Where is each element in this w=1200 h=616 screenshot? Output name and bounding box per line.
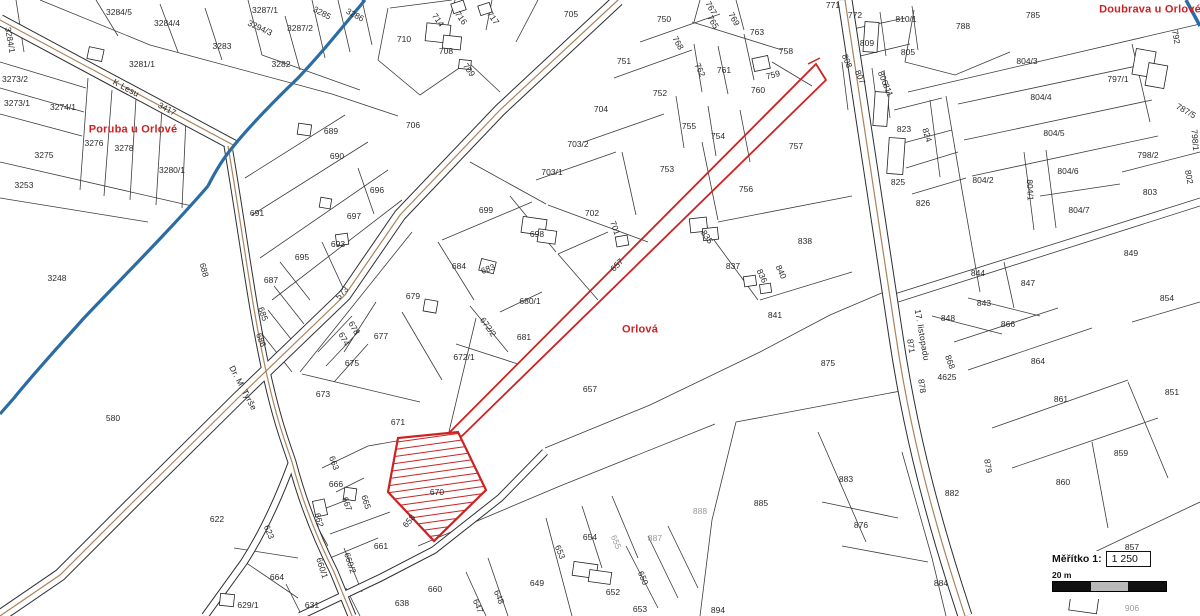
parcel-number-label: 841 [768,311,782,320]
parcel-number-label: 804/7 [1068,206,1089,215]
parcel-number-label: 698 [530,230,544,239]
parcel-number-label: 695 [295,253,309,262]
parcel-number-label: 755 [682,122,696,131]
parcel-number-label: 785 [1026,11,1040,20]
parcel-number-label: 878 [917,378,927,393]
parcel-number-label: 657 [583,385,597,394]
parcel-number-label: 803 [1143,188,1157,197]
parcel-number-label: 631 [305,601,319,610]
parcel-number-label: 753 [660,165,674,174]
parcel-number-label: 673 [316,390,330,399]
parcel-number-label: 3276 [85,139,104,148]
scale-bar-segment [1128,582,1166,591]
parcel-number-label: 763 [750,28,764,37]
parcel-number-label: 754 [711,132,725,141]
parcel-number-label: 629/1 [237,601,258,610]
parcel-number-label: 704 [594,105,608,114]
parcel-number-label: 687 [264,276,278,285]
parcel-number-label: 866 [1001,320,1015,329]
parcel-number-label: 857 [1125,543,1139,552]
parcel-number-label: 672/1 [453,353,474,362]
parcel-number-label: 823 [897,125,911,134]
parcel-number-label: 3273/1 [4,99,30,108]
parcel-number-label: 750 [657,15,671,24]
parcel-number-label: 887 [648,534,662,543]
parcel-number-label: 710 [397,35,411,44]
parcel-number-label: 882 [945,489,959,498]
parcel-number-label: 844 [971,269,985,278]
parcel-number-label: 691 [250,209,264,218]
parcel-number-label: 653 [633,605,647,614]
parcel-number-label: 864 [1031,357,1045,366]
parcel-number-label: 680/1 [519,297,540,306]
parcel-number-label: 843 [977,299,991,308]
parcel-number-label: 798/1 [1190,129,1200,151]
parcel-number-label: 757 [789,142,803,151]
parcel-number-label: 652 [606,588,620,597]
parcel-number-label: 649 [530,579,544,588]
parcel-number-label: 826 [916,199,930,208]
parcel-number-label: 804/6 [1057,167,1078,176]
parcel-number-label: 810/1 [895,15,916,24]
parcel-number-label: 670 [430,488,444,497]
parcel-number-label: 693 [331,240,345,249]
parcel-number-label: 3287/1 [252,6,278,15]
parcel-number-label: 703/2 [567,140,588,149]
parcel-number-label: 847 [1021,279,1035,288]
parcel-number-label: 3283 [213,42,232,51]
parcel-number-label: 756 [739,185,753,194]
parcel-number-label: 772 [848,11,862,20]
parcel-number-label: 760 [751,86,765,95]
parcel-number-label: 3253 [15,181,34,190]
parcel-number-label: 3284/5 [106,8,132,17]
parcel-number-label: 771 [826,1,840,10]
parcel-number-label: 849 [1124,249,1138,258]
parcel-number-label: 809 [860,39,874,48]
parcel-number-label: 697 [347,212,361,221]
scale-ratio-input[interactable]: 1 250 [1106,551,1151,567]
parcel-number-label: 798/2 [1137,151,1158,160]
scale-bar-segment [1053,582,1091,591]
scale-bar-label: 20 m [1052,570,1182,580]
parcel-number-label: 848 [941,314,955,323]
scale-bar-segment [1091,582,1128,591]
parcel-number-label: 708 [439,47,453,56]
parcel-number-label: 660 [428,585,442,594]
parcel-number-label: 860 [1056,478,1070,487]
parcel-number-label: 3275 [35,151,54,160]
parcel-number-label: 883 [839,475,853,484]
parcel-number-label: 859 [1114,449,1128,458]
parcel-number-label: 792 [1171,29,1182,44]
parcel-number-label: 802 [1184,169,1195,184]
parcel-number-label: 906 [1125,604,1139,613]
parcel-number-label: 888 [693,507,707,516]
parcel-number-label: 884 [934,579,948,588]
parcel-number-label: 3273/2 [2,75,28,84]
map-viewport[interactable]: Poruba u OrlovéOrlováDoubrava u OrlovéK … [0,0,1200,616]
parcel-number-label: 705 [564,10,578,19]
parcel-number-label: 580 [106,414,120,423]
parcel-number-label: 804/4 [1030,93,1051,102]
parcel-number-label: 885 [754,499,768,508]
parcel-number-label: 661 [374,542,388,551]
parcel-number-label: 804/3 [1016,57,1037,66]
parcel-number-label: 797/1 [1107,75,1128,84]
parcel-number-label: 706 [406,121,420,130]
parcel-number-label: 664 [270,573,284,582]
parcel-number-label: 677 [374,332,388,341]
parcel-number-label: 679 [406,292,420,301]
parcel-number-label: 804/5 [1043,129,1064,138]
parcel-number-label: 699 [479,206,493,215]
parcel-number-label: 622 [210,515,224,524]
roads [0,0,965,616]
parcel-number-label: 751 [617,57,631,66]
parcel-number-label: 837 [726,262,740,271]
parcel-number-label: 3248 [48,274,67,283]
parcel-number-label: 894 [711,606,725,615]
parcel-number-label: 702 [585,209,599,218]
buildings [87,0,1168,614]
parcel-number-label: 689 [324,127,338,136]
parcel-number-label: 804/2 [972,176,993,185]
parcel-number-label: 684 [452,262,466,271]
parcel-number-label: 805 [901,48,915,57]
parcel-number-label: 761 [717,66,731,75]
parcel-number-label: 3280/1 [159,166,185,175]
parcel-number-label: 4625 [938,373,957,382]
cadastral-area-label: Doubrava u Orlové [1099,5,1200,16]
parcel-number-label: 3281/1 [129,60,155,69]
parcel-number-label: 871 [906,338,916,353]
scale-box: Měřítko 1: 1 250 20 m [1052,551,1182,599]
parcel-number-label: 675 [345,359,359,368]
parcel-number-label: 681 [517,333,531,342]
parcel-number-label: 861 [1054,395,1068,404]
parcel-number-label: 3274/1 [50,103,76,112]
parcel-number-label: 662 [313,512,325,528]
parcel-number-label: 875 [821,359,835,368]
parcel-number-label: 666 [329,480,343,489]
parcel-number-label: 3278 [115,144,134,153]
parcel-number-label: 3287/2 [287,24,313,33]
parcel-number-label: 638 [395,599,409,608]
parcel-number-label: 825 [891,178,905,187]
parcel-number-label: 851 [1165,388,1179,397]
parcel-number-label: 758 [779,47,793,56]
cadastral-map-canvas[interactable] [0,0,1200,616]
scale-bar [1052,581,1167,592]
cadastral-area-label: Poruba u Orlové [89,125,178,136]
parcel-number-label: 3282 [272,60,291,69]
parcel-number-label: 876 [854,521,868,530]
parcel-number-label: 654 [583,533,597,542]
parcel-number-label: 804/1 [1025,179,1034,201]
parcel-number-label: 703/1 [541,168,562,177]
parcel-number-label: 671 [391,418,405,427]
parcel-number-label: 879 [983,458,993,473]
cadastral-area-label: Orlová [622,325,658,336]
parcel-number-label: 688 [198,262,210,278]
parcel-number-label: 696 [370,186,384,195]
scale-label: Měřítko 1: [1052,553,1102,565]
parcel-boundaries [0,0,1200,616]
parcel-number-label: 838 [798,237,812,246]
parcel-number-label: 788 [956,22,970,31]
parcel-number-label: 690 [330,152,344,161]
parcel-number-label: 752 [653,89,667,98]
parcel-number-label: 854 [1160,294,1174,303]
parcel-number-label: 3284/4 [154,19,180,28]
